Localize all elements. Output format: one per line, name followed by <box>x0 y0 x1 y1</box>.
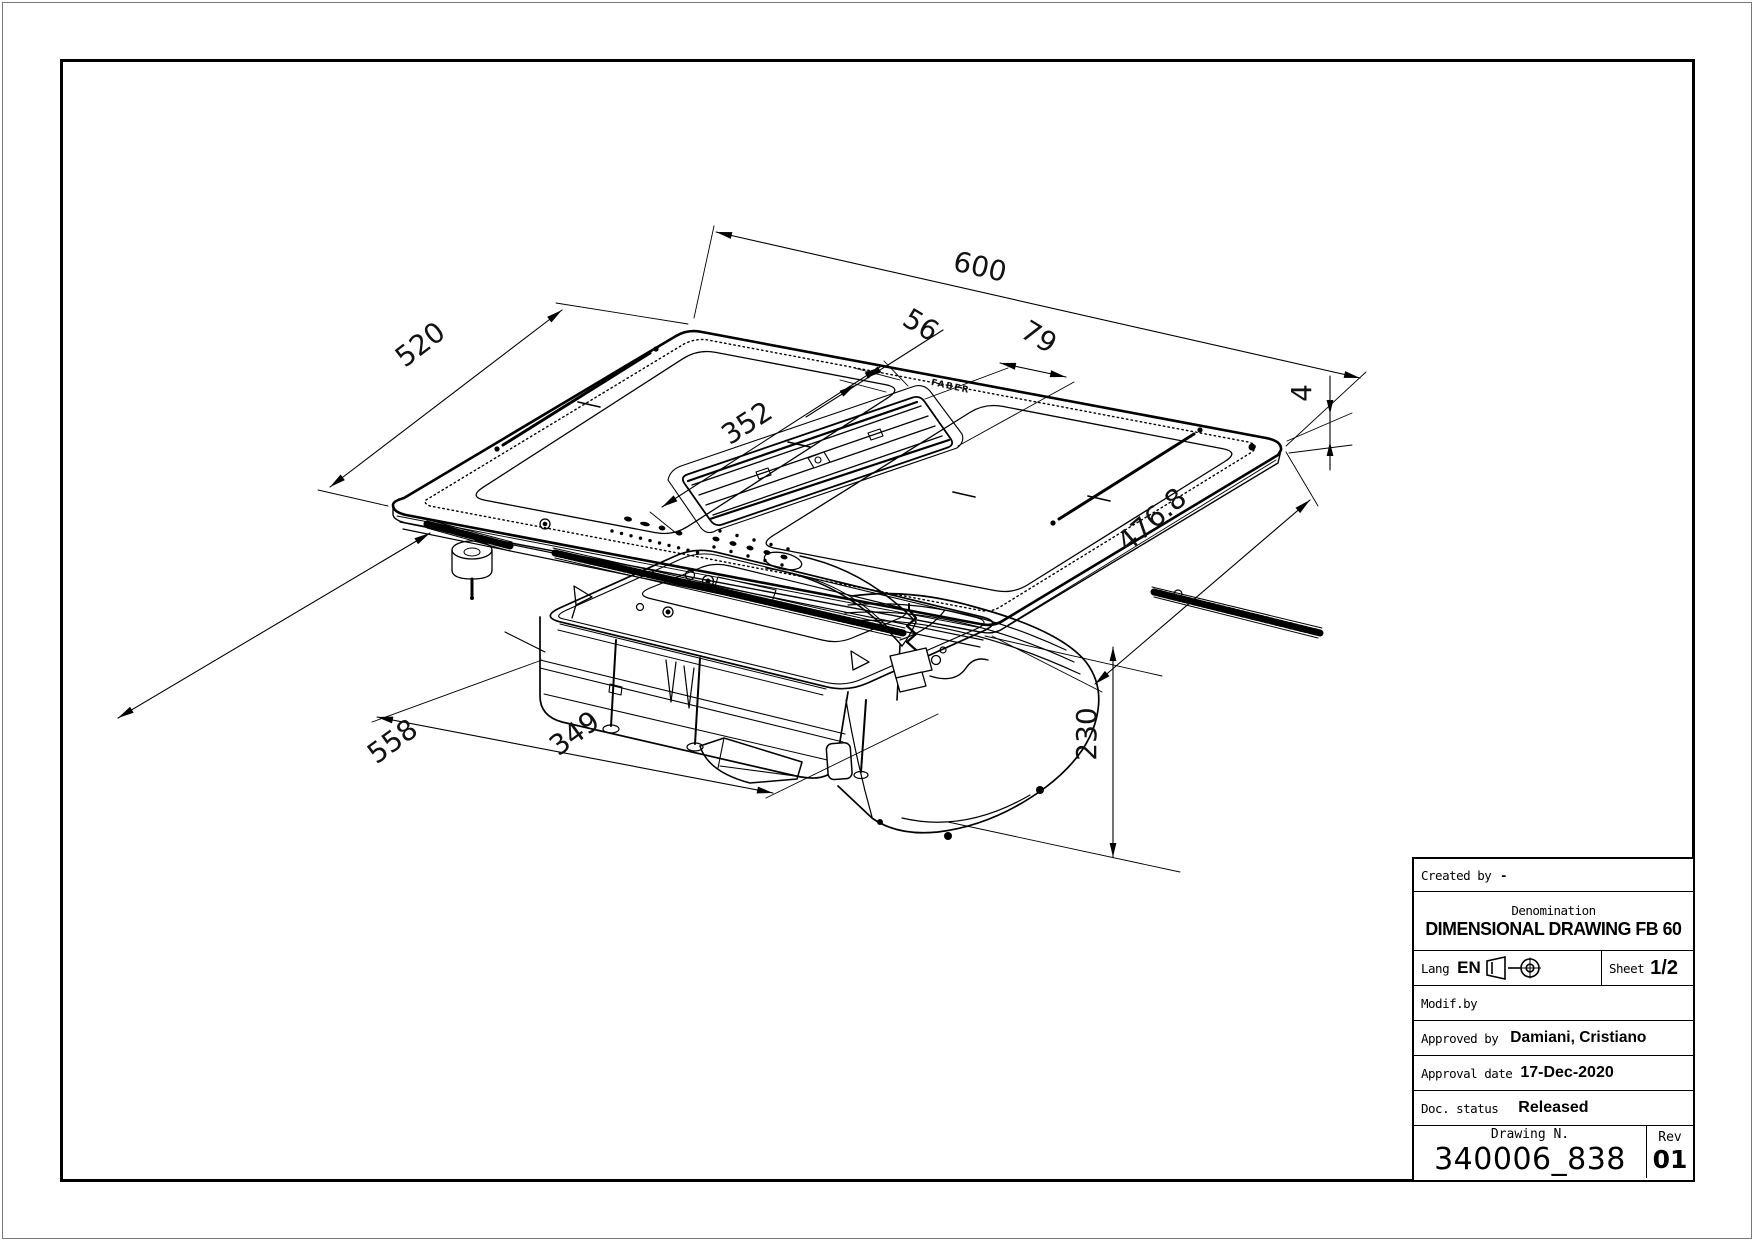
modif-by-label: Modif.by <box>1421 996 1477 1011</box>
dim-230 <box>948 636 1180 872</box>
dimensions <box>118 226 1366 872</box>
rev-label: Rev <box>1658 1130 1681 1145</box>
doc-status-row: Doc. status Released <box>1414 1091 1693 1126</box>
approved-by-label: Approved by <box>1421 1031 1498 1046</box>
lang-label: Lang <box>1421 961 1449 976</box>
dimension-labels: 520 600 56 79 352 4 476.8 558 349 230 <box>361 245 1318 771</box>
modif-by-row: Modif.by <box>1414 986 1693 1021</box>
lang-sheet-row: Lang EN Sheet 1/2 <box>1414 951 1693 986</box>
dim-label-4: 4 <box>1285 384 1318 402</box>
approval-date-row: Approval date 17-Dec-2020 <box>1414 1056 1693 1091</box>
created-by-label: Created by <box>1421 868 1491 883</box>
under-structure <box>400 519 1322 840</box>
created-by-row: Created by - <box>1414 859 1693 892</box>
dim-352 <box>650 361 908 533</box>
first-angle-projection-icon <box>1484 956 1546 980</box>
drawing-sheet: FABER <box>0 0 1754 1241</box>
approved-by-value: Damiani, Cristiano <box>1510 1029 1646 1047</box>
denomination-label: Denomination <box>1511 903 1595 918</box>
dim-476-8 <box>992 452 1318 692</box>
dim-label-230: 230 <box>1070 707 1103 760</box>
sheet-label: Sheet <box>1609 961 1644 976</box>
denomination-row: Denomination DIMENSIONAL DRAWING FB 60 <box>1414 892 1693 951</box>
dim-520 <box>318 303 688 506</box>
dim-label-600: 600 <box>950 245 1009 289</box>
approved-by-row: Approved by Damiani, Cristiano <box>1414 1021 1693 1056</box>
lang-value: EN <box>1457 958 1481 978</box>
created-by-value: - <box>1501 867 1506 884</box>
title-block: Created by - Denomination DIMENSIONAL DR… <box>1412 857 1695 1182</box>
dim-label-349: 349 <box>543 704 606 762</box>
dim-558 <box>118 533 430 718</box>
glass-top: FABER <box>393 331 1281 633</box>
doc-status-label: Doc. status <box>1421 1101 1498 1116</box>
doc-status-value: Released <box>1518 1099 1588 1117</box>
dim-label-352: 352 <box>715 395 778 452</box>
dim-label-79: 79 <box>1015 314 1063 361</box>
dim-label-520: 520 <box>389 315 451 374</box>
approval-date-label: Approval date <box>1421 1066 1512 1081</box>
rev-value: 01 <box>1653 1145 1688 1174</box>
drawing-n-value: 340006_838 <box>1434 1142 1626 1177</box>
denomination-value: DIMENSIONAL DRAWING FB 60 <box>1425 918 1681 940</box>
dim-label-476-8: 476.8 <box>1111 481 1193 558</box>
approval-date-value: 17-Dec-2020 <box>1520 1064 1613 1082</box>
dim-label-56: 56 <box>897 302 945 349</box>
dim-349 <box>372 660 938 798</box>
dim-label-558: 558 <box>361 712 424 770</box>
sheet-value: 1/2 <box>1650 957 1678 980</box>
drawing-n-label: Drawing N. <box>1491 1127 1569 1142</box>
drawing-number-row: Drawing N. 340006_838 Rev 01 <box>1414 1126 1693 1178</box>
